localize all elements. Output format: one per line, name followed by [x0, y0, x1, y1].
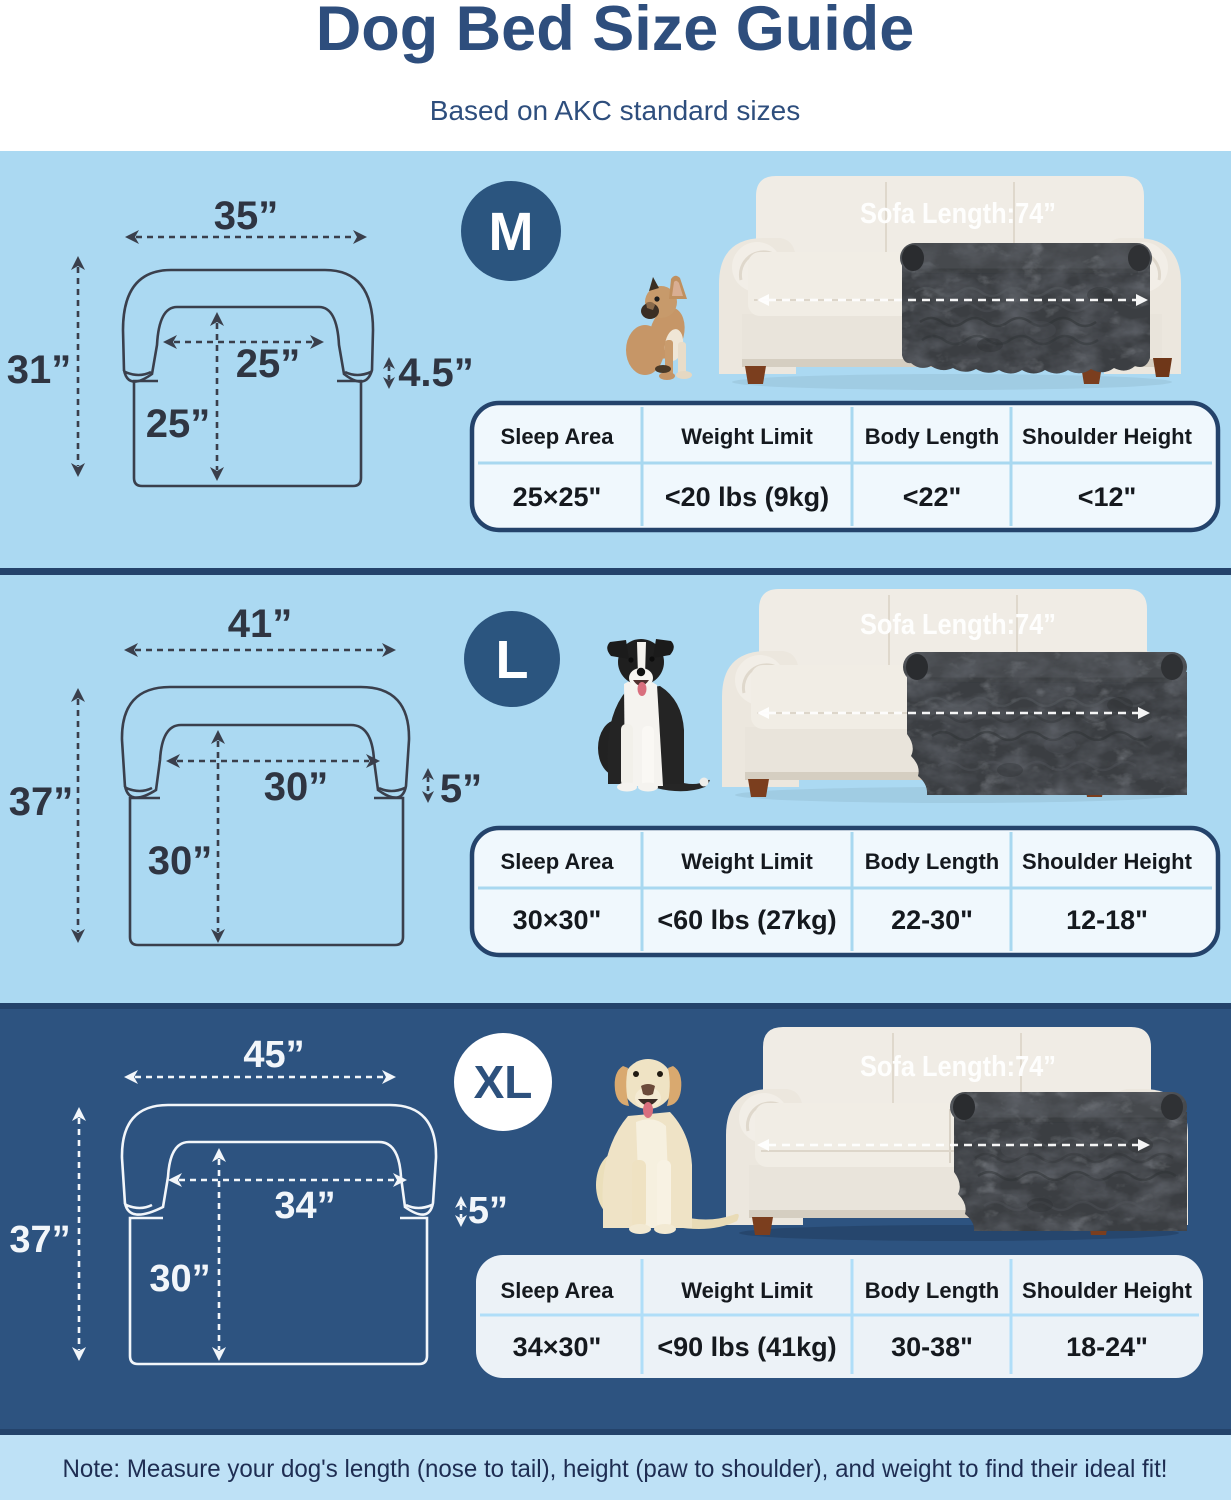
svg-text:Shoulder Height: Shoulder Height [1022, 849, 1193, 874]
svg-text:<20 lbs (9kg): <20 lbs (9kg) [665, 482, 829, 512]
svg-text:30×30": 30×30" [513, 905, 602, 935]
svg-text:Body Length: Body Length [865, 849, 999, 874]
svg-text:37”: 37” [9, 1219, 70, 1261]
svg-text:<12": <12" [1078, 482, 1137, 512]
svg-text:XL: XL [474, 1056, 533, 1108]
svg-text:31”: 31” [7, 348, 72, 392]
svg-text:35”: 35” [214, 194, 279, 238]
svg-text:Weight Limit: Weight Limit [681, 849, 813, 874]
svg-text:5”: 5” [440, 767, 482, 811]
svg-text:5”: 5” [468, 1190, 508, 1232]
svg-text:<22": <22" [903, 482, 962, 512]
svg-text:Body Length: Body Length [865, 424, 999, 449]
svg-text:30”: 30” [149, 1258, 210, 1300]
svg-text:Note: Measure your dog's lengt: Note: Measure your dog's length (nose to… [63, 1455, 1168, 1483]
svg-text:Dog Bed Size Guide: Dog Bed Size Guide [316, 0, 915, 64]
svg-text:Weight Limit: Weight Limit [681, 424, 813, 449]
svg-text:30”: 30” [148, 839, 213, 883]
svg-text:Sofa Length:74”: Sofa Length:74” [860, 1051, 1056, 1083]
svg-text:<60 lbs (27kg): <60 lbs (27kg) [657, 905, 836, 935]
svg-text:Body Length: Body Length [865, 1278, 999, 1303]
svg-text:37”: 37” [9, 780, 74, 824]
svg-text:Sleep Area: Sleep Area [501, 1278, 615, 1303]
svg-text:12-18": 12-18" [1066, 905, 1148, 935]
svg-text:34”: 34” [274, 1185, 335, 1227]
svg-text:L: L [496, 630, 529, 690]
svg-text:Based on AKC standard sizes: Based on AKC standard sizes [430, 95, 800, 126]
svg-text:18-24": 18-24" [1066, 1332, 1148, 1362]
svg-text:25×25": 25×25" [513, 482, 602, 512]
svg-text:25”: 25” [146, 402, 211, 446]
svg-text:25”: 25” [236, 342, 301, 386]
svg-text:Sofa Length:74”: Sofa Length:74” [860, 609, 1056, 641]
svg-text:<90 lbs (41kg): <90 lbs (41kg) [657, 1332, 836, 1362]
svg-text:Sleep Area: Sleep Area [501, 424, 615, 449]
svg-text:22-30": 22-30" [891, 905, 973, 935]
svg-text:Sleep Area: Sleep Area [501, 849, 615, 874]
svg-text:4.5”: 4.5” [398, 351, 474, 395]
svg-text:M: M [489, 202, 534, 262]
svg-text:41”: 41” [228, 602, 293, 646]
svg-text:30-38": 30-38" [891, 1332, 973, 1362]
svg-text:34×30": 34×30" [513, 1332, 602, 1362]
svg-text:Weight Limit: Weight Limit [681, 1278, 813, 1303]
svg-text:Shoulder Height: Shoulder Height [1022, 1278, 1193, 1303]
svg-text:45”: 45” [243, 1034, 304, 1076]
svg-text:Sofa Length:74”: Sofa Length:74” [860, 198, 1056, 230]
svg-text:Shoulder Height: Shoulder Height [1022, 424, 1193, 449]
svg-text:30”: 30” [264, 765, 329, 809]
